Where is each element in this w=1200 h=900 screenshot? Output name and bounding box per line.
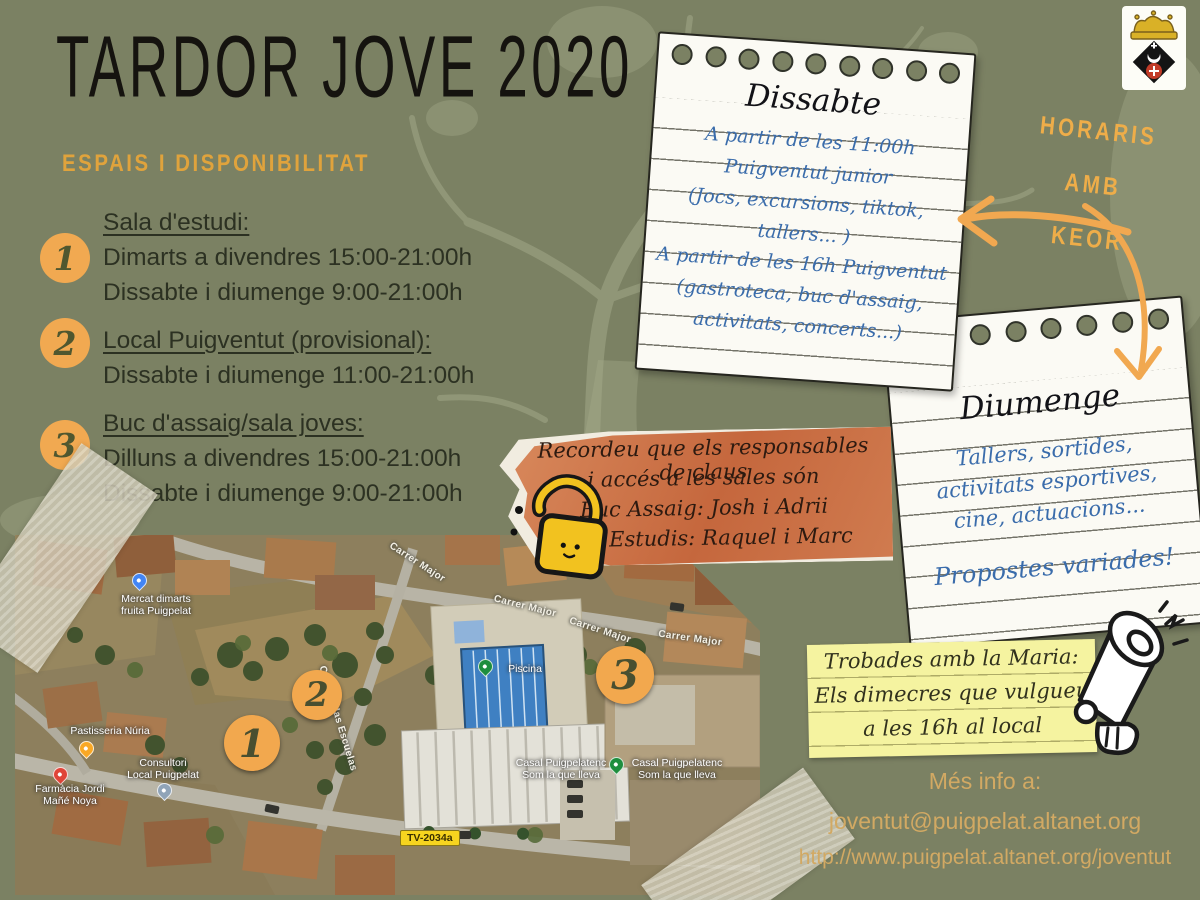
map-poi-label: Consultori Local Puigpelat	[107, 757, 219, 781]
schedule-item: Sala d'estudi: Dimarts a divendres 15:00…	[103, 205, 513, 310]
saturday-note: Dissabte A partir de les 11:00h Puigvent…	[635, 31, 977, 391]
schedule-line: Dilluns a divendres 15:00-21:00h	[103, 441, 513, 476]
megaphone-icon	[1028, 600, 1198, 765]
map-poi-label: Piscina	[495, 663, 555, 675]
schedule-heading: Local Puigventut (provisional):	[103, 323, 513, 358]
map-marker-3: 3	[596, 646, 654, 704]
map-marker-1: 1	[224, 715, 280, 771]
contact-email: joventut@puigpelat.altanet.org	[775, 808, 1195, 835]
padlock-icon	[505, 462, 620, 587]
puigpelat-coat-of-arms	[1122, 6, 1186, 90]
map-poi-label: Pastisseria Núria	[45, 725, 175, 737]
schedule-heading: Sala d'estudi:	[103, 205, 513, 240]
schedule-line: Dissabte i diumenge 11:00-21:00h	[103, 358, 513, 393]
map-poi-label: Casal Puigpelatenc Som la que lleva	[623, 757, 731, 781]
map-poi-label: Farmàcia Jordi Mañé Noya	[15, 783, 125, 807]
schedule-number-badge: 1	[40, 233, 90, 283]
contact-heading: Més info a:	[775, 768, 1195, 795]
schedule-heading: Buc d'assaig/sala joves:	[103, 406, 513, 441]
poster-subtitle: ESPAIS I DISPONIBILITAT	[62, 150, 370, 178]
schedule-line: Dissabte i diumenge 9:00-21:00h	[103, 275, 513, 310]
schedule-line: Dissabte i diumenge 9:00-21:00h	[103, 476, 513, 511]
location-map: Carrer Major Carrer Major Carrer Major C…	[15, 535, 760, 895]
map-poi-label: Casal Puigpelatenc Som la que lleva	[507, 757, 615, 781]
schedule-line: Dimarts a divendres 15:00-21:00h	[103, 240, 513, 275]
schedule-number-badge: 2	[40, 318, 90, 368]
contact-url: http://www.puigpelat.altanet.org/joventu…	[775, 846, 1195, 870]
poster: TARDOR JOVE 2020 ESPAIS I DISPONIBILITAT…	[0, 0, 1200, 900]
keor-line1: HORARIS AMB	[1005, 95, 1188, 220]
map-marker-2: 2	[292, 670, 342, 720]
map-poi-label: Mercat dimarts fruita Puigpelat	[100, 593, 212, 617]
satellite-map-image	[15, 535, 760, 895]
schedule-item: Buc d'assaig/sala joves: Dilluns a diven…	[103, 406, 513, 511]
keor-caption: HORARIS AMB KEOR	[999, 95, 1187, 274]
schedule-item: Local Puigventut (provisional): Dissabte…	[103, 323, 513, 393]
road-number-badge: TV-2034a	[400, 830, 460, 846]
poster-title: TARDOR JOVE 2020	[56, 16, 633, 118]
